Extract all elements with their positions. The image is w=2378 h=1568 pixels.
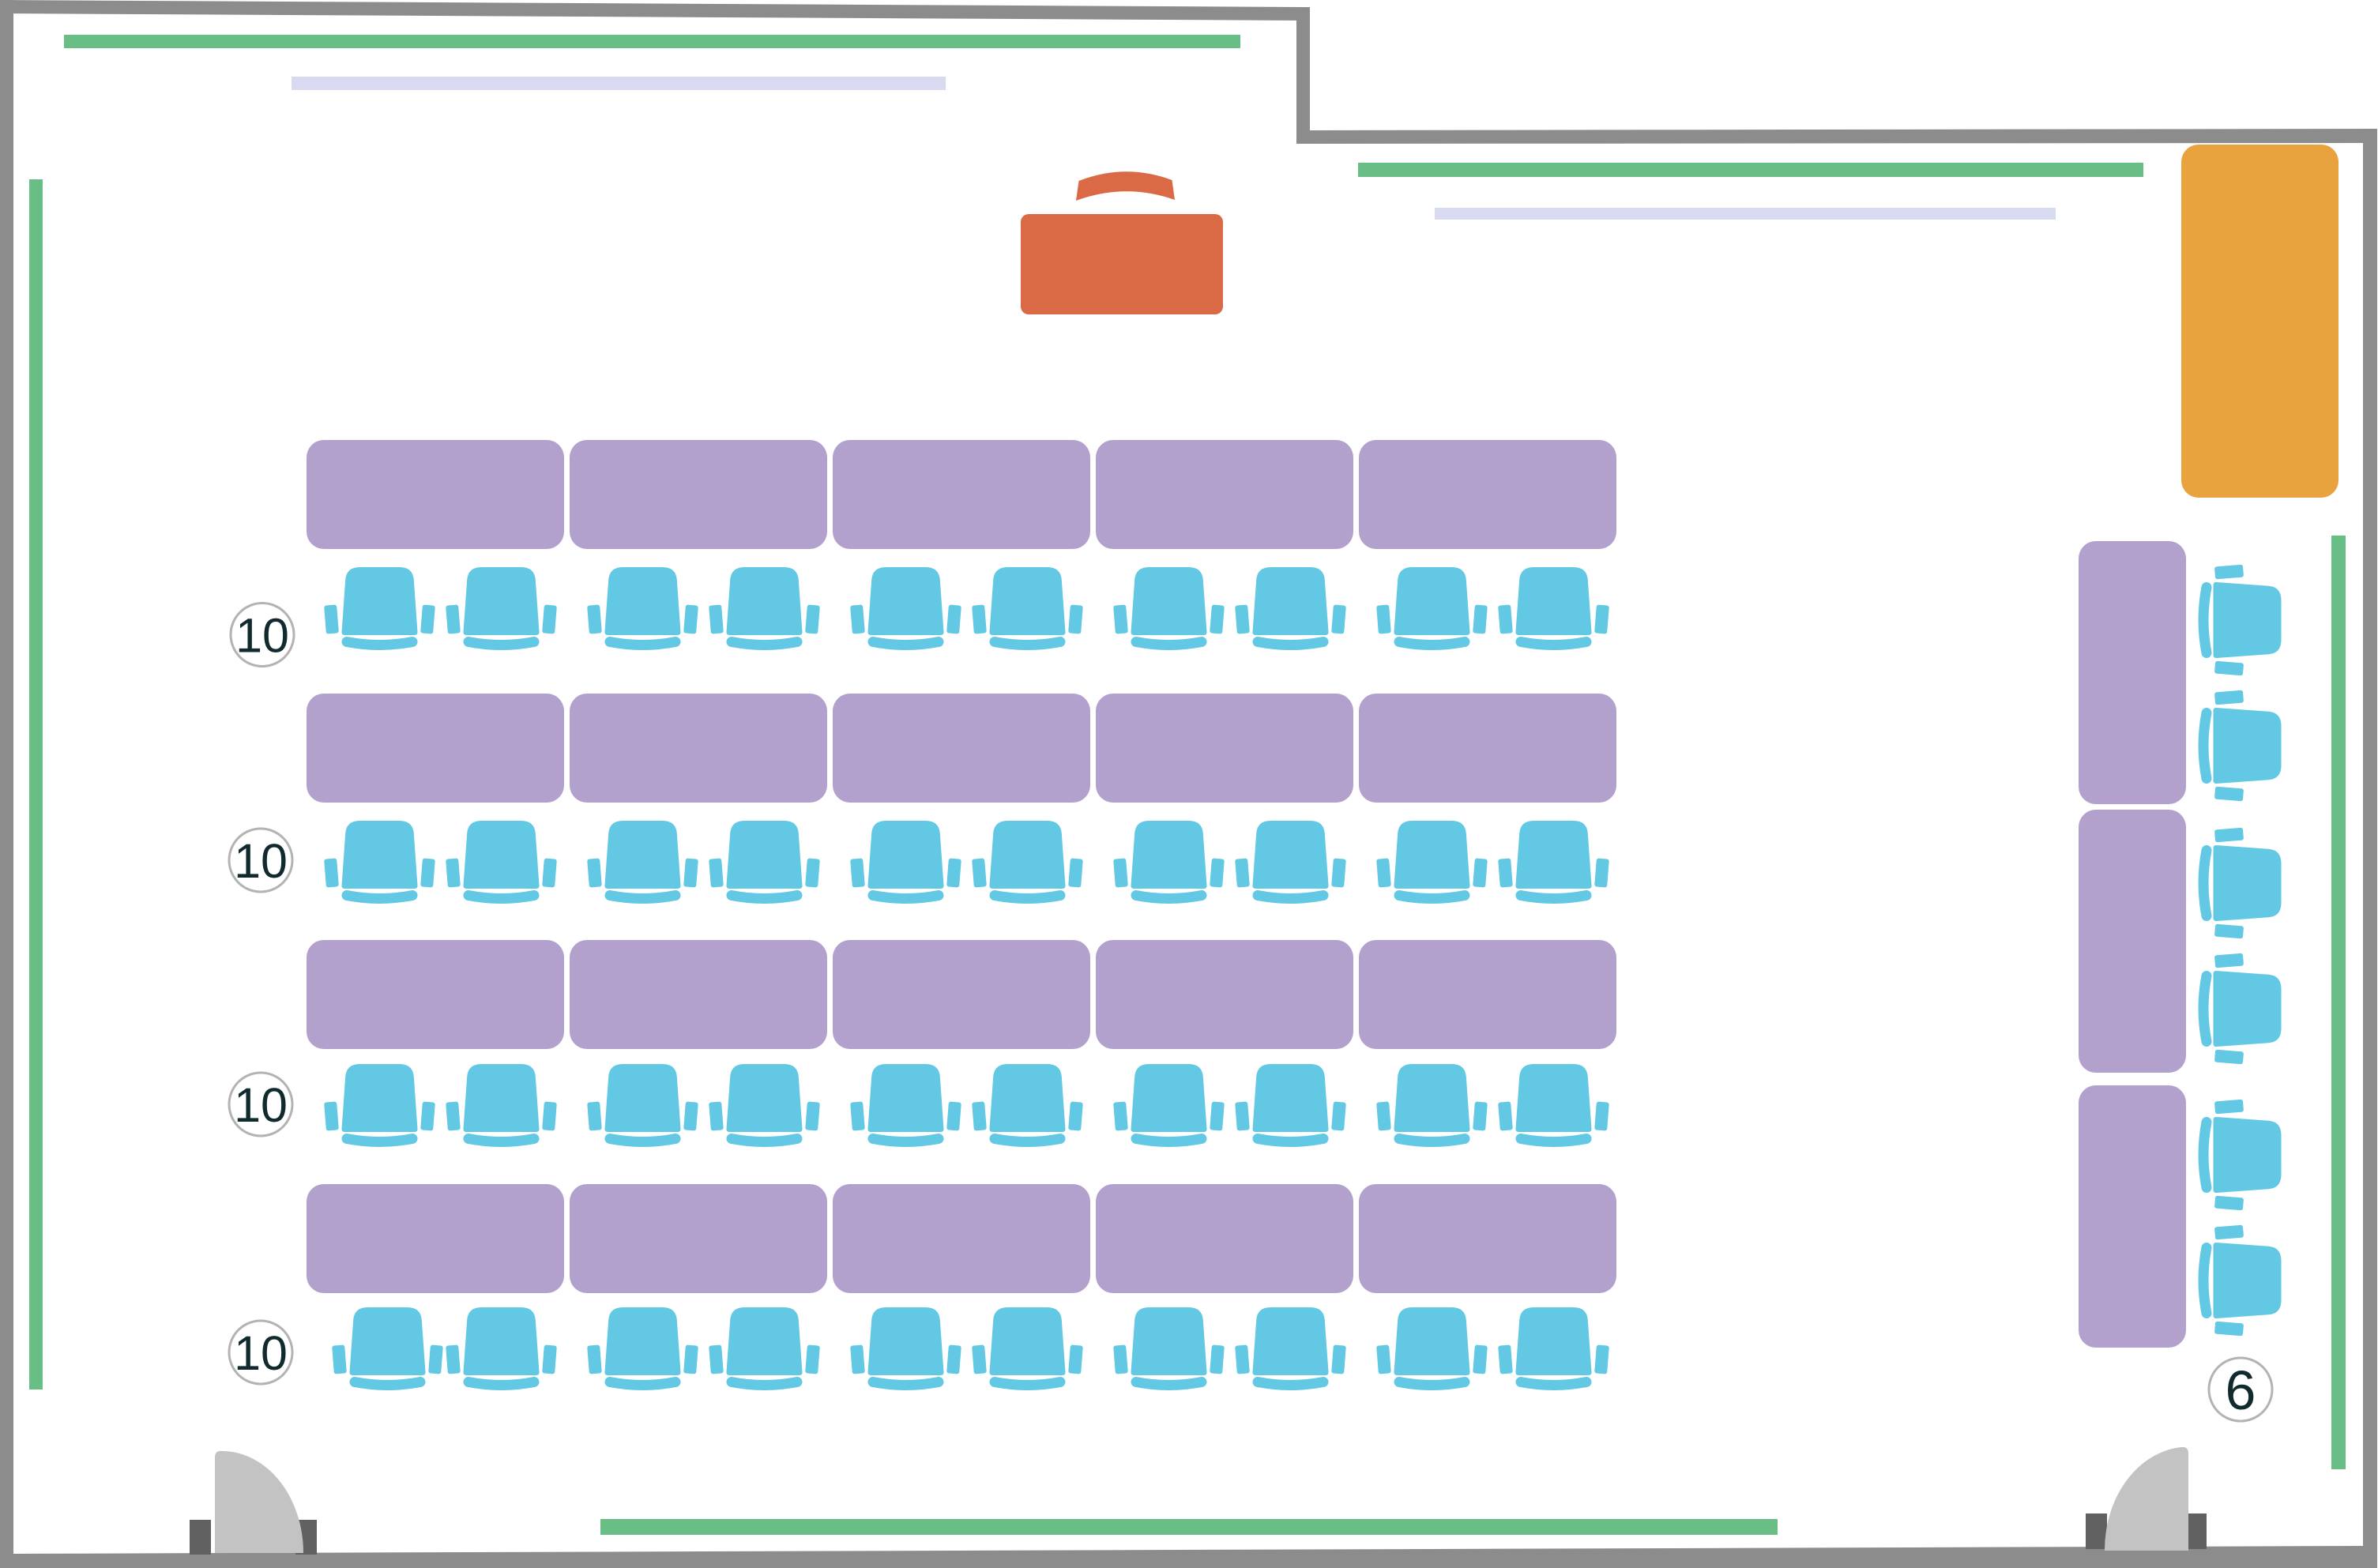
svg-text:10: 10	[235, 609, 289, 663]
svg-text:10: 10	[234, 834, 288, 888]
svg-text:10: 10	[234, 1326, 288, 1380]
svg-text:6: 6	[2226, 1359, 2256, 1421]
svg-text:10: 10	[234, 1078, 288, 1132]
